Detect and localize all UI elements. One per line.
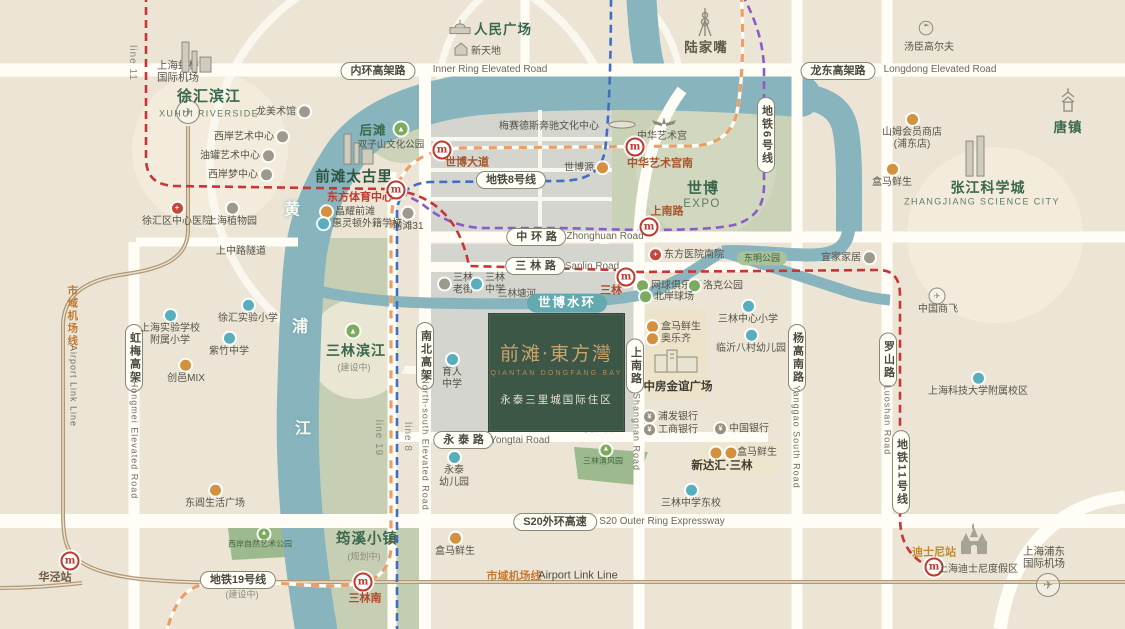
label-pudong-airport-text: 上海浦东 国际机场 bbox=[1023, 546, 1065, 570]
station-dongfang-sports-center-label: 东方体育中心 bbox=[327, 192, 393, 205]
pill-sanlin-road-text: 三林路 bbox=[515, 260, 560, 272]
poi-wellington-school-dot-icon bbox=[318, 219, 329, 230]
note-line19: (建设中) bbox=[226, 590, 259, 601]
poi-xuhui-exp-primary-text: 徐汇实验小学 bbox=[218, 313, 278, 325]
note-line19-text: (建设中) bbox=[226, 590, 259, 600]
label-airport-link-cn-h-text: 市域机场线 bbox=[487, 571, 542, 583]
station-huajing-label: 华泾站 bbox=[39, 572, 72, 585]
poi-botanical-garden: 上海植物园 bbox=[207, 203, 257, 228]
label-zhonghuan-en: Zhonghuan Road bbox=[566, 231, 643, 243]
poi-xuhui-exp-primary: 徐汇实验小学 bbox=[218, 300, 278, 325]
label-nature-art-park-text: 西岸自然艺术公园 bbox=[228, 539, 292, 548]
poi-long-museum: 龙美术馆 bbox=[256, 106, 310, 118]
poi-sams-club-text: 山姆会员商店 (浦东店) bbox=[882, 127, 942, 150]
station-art-palace-south-icon: m bbox=[626, 138, 645, 157]
station-disney-label: 迪士尼站 bbox=[912, 547, 956, 560]
icon-zhangjiang-towers bbox=[962, 135, 988, 183]
map-canvas: 上海虹桥 国际机场✈line 11徐汇滨江XUHUI RIVERSIDE龙美术馆… bbox=[0, 0, 1125, 629]
station-expo-avenue-text: 世博大道 bbox=[445, 157, 489, 169]
pill-inner-ring-text: 内环高架路 bbox=[351, 65, 406, 77]
icon-tangzhen-pagoda bbox=[1058, 87, 1078, 119]
note-sanlin-riverside-text: (建设中) bbox=[338, 363, 371, 373]
pill-dongming-park: 东明公园 bbox=[737, 251, 787, 265]
label-tangzhen: 唐镇 bbox=[1054, 120, 1083, 136]
project-subtitle: 永泰三里城国际住区 bbox=[500, 392, 613, 407]
station-sanlin-text: 三林 bbox=[600, 285, 622, 297]
label-s20-en-text: S20 Outer Ring Expressway bbox=[599, 516, 725, 527]
pill-luoshan-road-text: 罗山路 bbox=[882, 341, 894, 380]
label-north-south-en-v-text: North-south Elevated Road bbox=[420, 377, 430, 511]
label-s20-en: S20 Outer Ring Expressway bbox=[599, 516, 725, 528]
project-title: 前滩·東方灣 bbox=[500, 339, 613, 366]
poi-shiyan-primary-text: 上海实验学校 附属小学 bbox=[140, 323, 200, 346]
station-shangnan-road-label: 上南路 bbox=[651, 206, 684, 219]
poi-expo-source-dot-icon bbox=[597, 163, 608, 174]
label-zhangjiang: 张江科学城 bbox=[951, 180, 1026, 197]
poi-spd-bank-dot-icon: ¥ bbox=[644, 412, 655, 423]
label-lujiazui-text: 陆家嘴 bbox=[684, 40, 728, 55]
poi-boc-bank: ¥中国银行 bbox=[715, 423, 769, 435]
poi-sams-club: 山姆会员商店 (浦东店) bbox=[882, 114, 942, 150]
poi-xintiandi-text: 新天地 bbox=[471, 46, 501, 57]
poi-yongtai-kindergarten: 永泰 幼儿园 bbox=[439, 452, 469, 488]
pill-yongtai-road-text: 永泰路 bbox=[443, 434, 488, 446]
label-expo-en-text: EXPO bbox=[683, 198, 721, 210]
poi-zizhu-middle-text: 紫竹中学 bbox=[209, 346, 249, 358]
poi-beian-court: 北岸球场 bbox=[640, 291, 694, 303]
poi-zizhu-middle-dot-icon bbox=[224, 333, 235, 344]
label-longdong-en: Longdong Elevated Road bbox=[884, 64, 997, 76]
label-luoshan-en-v-text: Luoshan Road bbox=[882, 385, 892, 456]
pill-metro-line-19: 地铁19号线 bbox=[200, 571, 276, 589]
poi-disney-resort-text: 上海迪士尼度假区 bbox=[938, 564, 1018, 575]
station-art-palace-south-label: 中华艺术宫南 bbox=[627, 158, 693, 171]
station-expo-avenue-label: 世博大道 bbox=[445, 157, 489, 170]
poi-dongchang-plaza-text: 东阊生活广场 bbox=[185, 498, 245, 510]
icon-pudong-plane: ✈ bbox=[1036, 573, 1060, 597]
label-shangnan-en-v: Shangnan Road bbox=[631, 393, 642, 471]
pill-shangnan-v-text: 上南路 bbox=[629, 347, 641, 386]
label-pudong-airport: 上海浦东 国际机场 bbox=[1023, 546, 1065, 571]
poi-aldi: 奥乐齐 bbox=[647, 333, 691, 345]
poi-shanghaitech: 上海科技大学附属校区 bbox=[928, 373, 1028, 398]
poi-hema-xindahui-text: 盒马鲜生 bbox=[737, 447, 777, 458]
poi-spd-bank-text: 浦发银行 bbox=[658, 411, 698, 423]
label-line-19: line 19 bbox=[372, 420, 384, 456]
pill-yanggao-south: 杨高南路 bbox=[788, 324, 806, 392]
poi-jingyao-qiantan: 晶耀前滩 bbox=[321, 206, 375, 218]
poi-linyi-kindergarten-text: 临沂八村幼儿园 bbox=[716, 343, 786, 355]
label-xuhui-riverside-text: 徐汇滨江 bbox=[177, 88, 241, 105]
poi-tomson-golf: 汤臣高尔夫 bbox=[904, 42, 954, 54]
metro-station-icon: m bbox=[61, 552, 80, 571]
pill-north-south-elevated-text: 南北高架 bbox=[419, 330, 431, 382]
poi-wellington-school: 惠灵顿外籍学校 bbox=[318, 218, 402, 230]
poi-linyi-kindergarten-dot-icon bbox=[746, 330, 757, 341]
pill-inner-ring: 内环高架路 bbox=[341, 62, 416, 80]
poi-beian-court-dot-icon bbox=[640, 292, 651, 303]
poi-sanlin-middle-east-dot-icon bbox=[686, 485, 697, 496]
poi-yongtai-kindergarten-text: 永泰 幼儿园 bbox=[439, 465, 469, 488]
label-expo-text: 世博 bbox=[687, 180, 719, 197]
label-longdong-en-text: Longdong Elevated Road bbox=[884, 64, 997, 75]
poi-hema-xindahui: 盒马鲜生 bbox=[737, 447, 777, 459]
label-zhangjiang-text: 张江科学城 bbox=[951, 180, 1026, 196]
poi-ikea-dot-icon bbox=[864, 253, 875, 264]
poi-xuhui-exp-primary-dot-icon bbox=[243, 300, 254, 311]
project-marker-qiantan-dongfang-bay: 前滩·東方灣 QIANTAN DONGFANG BAY 永泰三里城国际住区 bbox=[488, 313, 625, 432]
label-luoshan-en-v: Luoshan Road bbox=[882, 385, 893, 456]
label-line-11-text: line 11 bbox=[127, 45, 138, 81]
poi-dongfang-hospital-south-dot-icon: + bbox=[650, 250, 661, 261]
station-sanlin-south-label: 三林南 bbox=[349, 593, 382, 606]
label-yongtai-en-text: Yongtai Road bbox=[490, 435, 550, 446]
poi-tennis-club-dot-icon bbox=[637, 281, 648, 292]
note-junxi-text: (规划中) bbox=[348, 552, 381, 562]
metro-station-icon: m bbox=[626, 138, 645, 157]
poi-yuren-middle-text: 育人 中学 bbox=[442, 367, 462, 390]
icon-comac-plane: ✈ bbox=[929, 288, 946, 305]
label-expo: 世博 bbox=[687, 180, 719, 198]
label-sanlin-riverside-text: 三林滨江 bbox=[326, 343, 386, 359]
icon-qingfeng-park: ▲ bbox=[601, 445, 612, 456]
label-hongmei-en-v-text: Hongmei Elevated Road bbox=[129, 381, 139, 500]
label-airport-link-en-v-text: Airport Link Line bbox=[68, 345, 78, 427]
pill-longdong-elevated: 龙东高架路 bbox=[801, 62, 876, 80]
label-sanlin-road-en-text: Sanlin Road bbox=[565, 261, 619, 272]
label-junxi-town-text: 筠溪小镇 bbox=[336, 531, 398, 547]
poi-qiantan-31: 前滩31 bbox=[392, 208, 423, 233]
label-xindahui-sanlin-text: 新达汇·三林 bbox=[691, 460, 752, 472]
poi-hema-center-text: 盒马鲜生 bbox=[661, 321, 701, 333]
poi-shanghaitech-dot-icon bbox=[973, 373, 984, 384]
poi-long-museum-text: 龙美术馆 bbox=[256, 106, 296, 118]
label-hongmei-en-v: Hongmei Elevated Road bbox=[129, 381, 140, 500]
label-qingfeng-park: 三林清风园 bbox=[583, 456, 623, 465]
poi-dongfang-hospital-south-text: 东方医院南院 bbox=[664, 249, 724, 261]
poi-ikea: 宜家家居 bbox=[821, 252, 875, 264]
poi-westbund-art-center: 西岸艺术中心 bbox=[214, 131, 288, 143]
label-jinyi-plaza-text: 中房金谊广场 bbox=[644, 381, 713, 393]
poi-westbund-dream-center: 西岸梦中心 bbox=[208, 169, 272, 181]
icon-mercedes-arena bbox=[607, 117, 637, 136]
label-airport-link-en-h: Airport Link Line bbox=[538, 570, 618, 583]
poi-icbc-bank: ¥工商银行 bbox=[644, 424, 698, 436]
project-title-en: QIANTAN DONGFANG BAY bbox=[490, 370, 622, 377]
poi-boc-bank-text: 中国银行 bbox=[729, 423, 769, 435]
label-line-19-text: line 19 bbox=[373, 420, 384, 456]
icon-nature-park: ▲ bbox=[259, 529, 270, 540]
label-shangzhong-tunnel-text: 上中路隧道 bbox=[216, 246, 266, 257]
pill-metro-line-6-text: 地铁6号线 bbox=[760, 105, 772, 165]
river-char-jiang: 江 bbox=[295, 421, 311, 440]
poi-tomson-golf-text: 汤臣高尔夫 bbox=[904, 42, 954, 53]
poi-botanical-garden-text: 上海植物园 bbox=[207, 216, 257, 228]
station-art-palace-south-text: 中华艺术宫南 bbox=[627, 158, 693, 170]
station-sanlin-south-icon: m bbox=[354, 573, 373, 592]
poi-hema-south-dot-icon bbox=[450, 533, 461, 544]
poi-ikea-text: 宜家家居 bbox=[821, 252, 861, 264]
poi-xuhui-hospital: +徐汇区中心医院 bbox=[142, 203, 212, 228]
river-char-jiang-text: 江 bbox=[295, 421, 311, 438]
pill-metro-line-6: 地铁6号线 bbox=[757, 97, 775, 173]
poi-yuren-middle: 育人 中学 bbox=[442, 354, 462, 390]
poi-qiantan-31-dot-icon bbox=[403, 208, 414, 219]
poi-sanlin-old-street-text: 三林 老街 bbox=[453, 273, 473, 296]
label-airport-link-en-v: Airport Link Line bbox=[68, 345, 79, 427]
poi-hema-northeast-text: 盒马鲜生 bbox=[872, 177, 912, 189]
label-expo-en: EXPO bbox=[683, 198, 721, 212]
icon-tomson-golf bbox=[919, 20, 934, 43]
label-shangnan-en-v-text: Shangnan Road bbox=[631, 393, 641, 471]
note-sanlin-riverside: (建设中) bbox=[338, 363, 371, 374]
label-qiantan-taikoo-li-text: 前滩太古里 bbox=[315, 169, 393, 185]
poi-sanlin-old-street: 三林 老街 bbox=[439, 273, 473, 296]
label-zhangjiang-en-text: ZHANGJIANG SCIENCE CITY bbox=[904, 197, 1060, 207]
icon-xuhui-skyline bbox=[177, 41, 215, 79]
poi-icbc-bank-text: 工商银行 bbox=[658, 424, 698, 436]
poi-rock-park-dot-icon bbox=[689, 281, 700, 292]
poi-westbund-dream-center-dot-icon bbox=[261, 170, 272, 181]
label-peoples-square: 人民广场 bbox=[474, 22, 532, 38]
pill-dongming-park-text: 东明公园 bbox=[744, 253, 780, 263]
pill-zhonghuan-road: 中环路 bbox=[506, 228, 566, 246]
poi-tank-art-center: 油罐艺术中心 bbox=[200, 150, 274, 162]
poi-disney-resort: 上海迪士尼度假区 bbox=[938, 564, 1018, 576]
poi-hema-northeast: 盒马鲜生 bbox=[872, 164, 912, 189]
station-disney-text: 迪士尼站 bbox=[912, 547, 956, 559]
poi-dongchang-plaza-dot-icon bbox=[210, 485, 221, 496]
poi-hema-northeast-dot-icon bbox=[887, 164, 898, 175]
poi-long-museum-dot-icon bbox=[299, 107, 310, 118]
pill-metro-line-11-text: 地铁11号线 bbox=[895, 438, 907, 506]
pill-expo-water-ring-text: 世博水环 bbox=[538, 296, 596, 310]
poi-tank-art-center-text: 油罐艺术中心 bbox=[200, 150, 260, 162]
label-xuhui-riverside-en-text: XUHUI RIVERSIDE bbox=[159, 109, 259, 119]
label-xindahui-sanlin: 新达汇·三林 bbox=[691, 460, 752, 474]
icon-xintiandi bbox=[453, 42, 469, 62]
poi-spd-bank: ¥浦发银行 bbox=[644, 411, 698, 423]
label-inner-ring-en: Inner Ring Elevated Road bbox=[433, 64, 548, 76]
icon-taikoo-skyline bbox=[339, 133, 377, 171]
label-art-palace-text: 中华艺术宫 bbox=[637, 131, 687, 142]
poi-shanghaitech-text: 上海科技大学附属校区 bbox=[928, 386, 1028, 398]
poi-dongfang-hospital-south: +东方医院南院 bbox=[650, 249, 724, 261]
pill-zhonghuan-road-text: 中环路 bbox=[516, 231, 561, 243]
poi-shiyan-primary-dot-icon bbox=[165, 310, 176, 321]
label-zhangjiang-en: ZHANGJIANG SCIENCE CITY bbox=[904, 197, 1060, 208]
dot-xindahui-1 bbox=[711, 448, 722, 459]
note-junxi: (规划中) bbox=[348, 552, 381, 563]
poi-jingyao-qiantan-dot-icon bbox=[321, 207, 332, 218]
poi-expo-source-text: 世博源 bbox=[564, 162, 594, 174]
pill-metro-line-8-text: 地铁8号线 bbox=[486, 174, 536, 186]
river-char-pu: 浦 bbox=[292, 319, 308, 338]
poi-xuhui-hospital-dot-icon: + bbox=[172, 203, 183, 214]
poi-boc-bank-dot-icon: ¥ bbox=[715, 424, 726, 435]
river-char-huang: 黄 bbox=[284, 202, 300, 221]
poi-westbund-art-center-dot-icon bbox=[277, 132, 288, 143]
pill-expo-water-ring: 世博水环 bbox=[527, 294, 607, 313]
station-shangnan-road-text: 上南路 bbox=[651, 206, 684, 218]
river-char-pu-text: 浦 bbox=[292, 319, 308, 336]
label-yanggao-en-v-text: Yanggao South Road bbox=[791, 385, 801, 488]
poi-sanlin-center-primary-text: 三林中心小学 bbox=[718, 314, 778, 326]
label-junxi-town: 筠溪小镇 bbox=[336, 531, 398, 548]
metro-station-icon: m bbox=[354, 573, 373, 592]
pill-yongtai-road: 永泰路 bbox=[433, 431, 493, 449]
label-airport-link-cn-v: 市域机场线 bbox=[66, 285, 78, 348]
dot-xindahui-2 bbox=[726, 448, 737, 459]
label-line-8-text: line 8 bbox=[402, 422, 413, 452]
poi-botanical-garden-dot-icon bbox=[227, 203, 238, 214]
pill-sanlin-road: 三林路 bbox=[505, 257, 565, 275]
icon-lujiazui-tower bbox=[695, 7, 715, 43]
poi-sanlin-center-primary-dot-icon bbox=[743, 301, 754, 312]
poi-jingyao-qiantan-text: 晶耀前滩 bbox=[335, 206, 375, 218]
icon-sanlin-riverside-park: ▲ bbox=[347, 325, 360, 338]
label-north-south-en-v: North-south Elevated Road bbox=[420, 377, 431, 511]
pill-shangnan-v: 上南路 bbox=[626, 339, 644, 394]
label-shangzhong-tunnel: 上中路隧道 bbox=[216, 246, 266, 258]
poi-aldi-text: 奥乐齐 bbox=[661, 333, 691, 345]
label-qiantan-taikoo-li: 前滩太古里 bbox=[315, 169, 393, 186]
poi-rock-park: 洛克公园 bbox=[689, 280, 743, 292]
poi-xintiandi: 新天地 bbox=[471, 46, 501, 58]
poi-sanlin-middle-dot-icon bbox=[471, 279, 482, 290]
label-inner-ring-en-text: Inner Ring Elevated Road bbox=[433, 64, 548, 75]
poi-expo-source: 世博源 bbox=[564, 162, 608, 174]
poi-westbund-dream-center-text: 西岸梦中心 bbox=[208, 169, 258, 181]
station-huajing-text: 华泾站 bbox=[39, 572, 72, 584]
poi-hema-center: 盒马鲜生 bbox=[647, 321, 701, 333]
pill-metro-line-19-text: 地铁19号线 bbox=[210, 574, 266, 586]
icon-houtan-park: ▲ bbox=[395, 123, 408, 136]
label-jinyi-plaza: 中房金谊广场 bbox=[644, 381, 713, 395]
poi-sanlin-center-primary: 三林中心小学 bbox=[718, 301, 778, 326]
poi-hema-south-text: 盒马鲜生 bbox=[435, 546, 475, 558]
icon-disney-castle bbox=[957, 523, 991, 561]
station-sanlin-south-text: 三林南 bbox=[349, 593, 382, 605]
poi-sams-club-dot-icon bbox=[907, 114, 918, 125]
poi-hema-south: 盒马鲜生 bbox=[435, 533, 475, 558]
poi-yongtai-kindergarten-dot-icon bbox=[449, 452, 460, 463]
label-peoples-square-text: 人民广场 bbox=[474, 22, 532, 37]
poi-chuangyi-mix: 创邑MIX bbox=[167, 360, 205, 385]
pill-s20: S20外环高速 bbox=[513, 513, 597, 531]
poi-qiantan-31-text: 前滩31 bbox=[392, 221, 423, 233]
poi-tank-art-center-dot-icon bbox=[263, 151, 274, 162]
poi-chuangyi-mix-text: 创邑MIX bbox=[167, 373, 205, 385]
poi-icbc-bank-dot-icon: ¥ bbox=[644, 425, 655, 436]
label-line-8: line 8 bbox=[401, 422, 413, 452]
poi-comac: 中国商飞 bbox=[918, 304, 958, 316]
poi-dongchang-plaza: 东阊生活广场 bbox=[185, 485, 245, 510]
label-line-11: line 11 bbox=[126, 45, 138, 81]
pill-metro-line-11: 地铁11号线 bbox=[892, 430, 910, 514]
poi-beian-court-text: 北岸球场 bbox=[654, 291, 694, 303]
poi-sanlin-middle-east-text: 三林中学东校 bbox=[661, 498, 721, 510]
label-nature-art-park: 西岸自然艺术公园 bbox=[228, 539, 292, 548]
pill-s20-text: S20外环高速 bbox=[523, 516, 587, 528]
label-lujiazui: 陆家嘴 bbox=[684, 40, 728, 56]
label-art-palace: 中华艺术宫 bbox=[637, 131, 687, 143]
label-yanggao-en-v: Yanggao South Road bbox=[791, 385, 802, 488]
pill-longdong-elevated-text: 龙东高架路 bbox=[811, 65, 866, 77]
label-airport-link-cn-h: 市域机场线 bbox=[487, 571, 542, 584]
label-mercedes-arena-text: 梅赛德斯奔驰文化中心 bbox=[499, 121, 599, 132]
poi-rock-park-text: 洛克公园 bbox=[703, 280, 743, 292]
poi-zizhu-middle: 紫竹中学 bbox=[209, 333, 249, 358]
label-sanlin-riverside: 三林滨江 bbox=[326, 343, 386, 360]
label-mercedes-arena: 梅赛德斯奔驰文化中心 bbox=[499, 121, 599, 133]
pill-yanggao-south-text: 杨高南路 bbox=[791, 332, 803, 384]
poi-sanlin-old-street-dot-icon bbox=[439, 279, 450, 290]
icon-jinyi-mall bbox=[653, 347, 699, 379]
poi-yuren-middle-dot-icon bbox=[447, 354, 458, 365]
poi-linyi-kindergarten: 临沂八村幼儿园 bbox=[716, 330, 786, 355]
label-airport-link-en-h-text: Airport Link Line bbox=[538, 570, 618, 582]
poi-chuangyi-mix-dot-icon bbox=[181, 360, 192, 371]
poi-xuhui-hospital-text: 徐汇区中心医院 bbox=[142, 216, 212, 228]
poi-hema-center-dot-icon bbox=[647, 322, 658, 333]
label-xuhui-riverside-en: XUHUI RIVERSIDE bbox=[159, 109, 259, 120]
poi-comac-text: 中国商飞 bbox=[918, 304, 958, 315]
pill-luoshan-road: 罗山路 bbox=[879, 333, 897, 388]
station-dongfang-sports-center-text: 东方体育中心 bbox=[327, 192, 393, 204]
label-tangzhen-text: 唐镇 bbox=[1054, 120, 1083, 135]
label-xuhui-riverside: 徐汇滨江 bbox=[177, 88, 241, 106]
label-zhonghuan-en-text: Zhonghuan Road bbox=[566, 231, 643, 242]
pill-hongmei-elevated-text: 虹梅高架 bbox=[128, 332, 140, 384]
label-yongtai-en: Yongtai Road bbox=[490, 435, 550, 447]
station-huajing-icon: m bbox=[61, 552, 80, 571]
icon-peoples-square bbox=[448, 18, 472, 41]
poi-aldi-dot-icon bbox=[647, 334, 658, 345]
poi-sanlin-middle-east: 三林中学东校 bbox=[661, 485, 721, 510]
label-sanlin-road-en: Sanlin Road bbox=[565, 261, 619, 273]
poi-shiyan-primary: 上海实验学校 附属小学 bbox=[140, 310, 200, 346]
station-sanlin-label: 三林 bbox=[600, 285, 622, 298]
pill-metro-line-8: 地铁8号线 bbox=[476, 171, 546, 189]
poi-westbund-art-center-text: 西岸艺术中心 bbox=[214, 131, 274, 143]
river-char-huang-text: 黄 bbox=[284, 202, 300, 219]
label-qingfeng-park-text: 三林清风园 bbox=[583, 456, 623, 465]
label-airport-link-cn-v-text: 市域机场线 bbox=[66, 285, 78, 348]
